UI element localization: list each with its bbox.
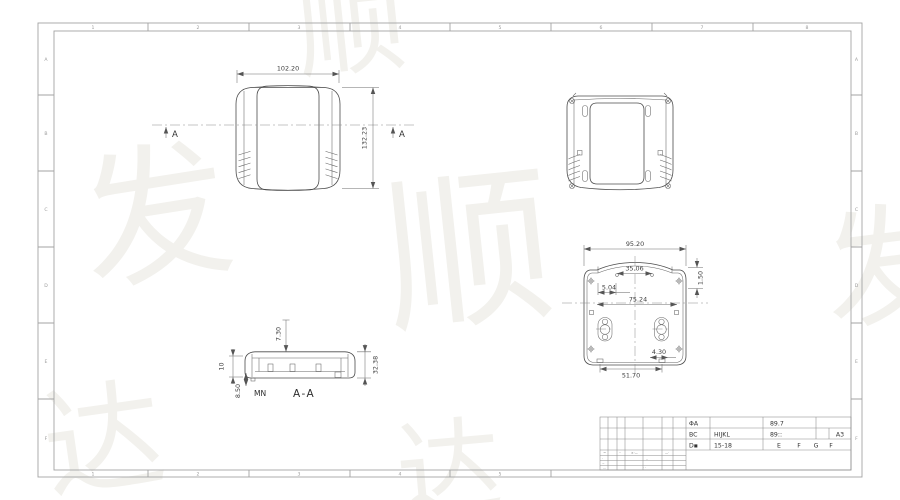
inner-offset-dim: 5.04: [602, 284, 616, 292]
drawing-sheet: 发 顺 达 顺 发 达 1 2 3 4 5 6 7 8 1 2 3 4 5: [0, 0, 900, 500]
zone-label: 8: [806, 25, 809, 31]
zone-label: A: [855, 57, 859, 63]
revision-mark: ··: [619, 451, 621, 455]
zone-label: C: [44, 207, 47, 213]
inner-foot-dim: 4.30: [652, 348, 666, 356]
inner-wall-dim: 1.50: [697, 271, 705, 285]
revision-mark: ×·—: [631, 451, 639, 455]
zone-label: E: [855, 359, 858, 365]
inner-width-dim: 75.24: [629, 296, 647, 304]
inner-square-right: [675, 311, 679, 315]
zone-label: A: [44, 57, 48, 63]
front-height-dim: 132.23: [361, 127, 369, 149]
zone-label: C: [855, 207, 858, 213]
title-block: ΦA 89.7 BC HIJKL 89:: A3 D▪ 15-18 E F G …: [600, 417, 851, 470]
watermark-char: 达: [392, 404, 507, 500]
tb-letter: E: [777, 443, 781, 450]
zone-label: 5: [499, 472, 502, 478]
zone-ticks-top: [148, 23, 753, 31]
zone-label: B: [855, 131, 858, 137]
view-inner: 95.20 35.06 5.04 75.24 1.50 4.30 51.70: [562, 240, 708, 380]
zone-ticks-left: [38, 95, 54, 399]
zone-label: 2: [197, 472, 200, 478]
back-screws: [569, 98, 670, 188]
zone-label: 1: [92, 472, 95, 478]
zone-label: 4: [399, 472, 402, 478]
zone-label: 4: [399, 25, 402, 31]
revision-mark: ·: [602, 456, 603, 460]
section-note: MN: [254, 389, 266, 398]
tb-letter: G: [814, 443, 819, 450]
zone-label: D: [44, 283, 48, 289]
watermark-char: 达: [35, 364, 173, 500]
tb-field-r2c3: 89::: [770, 432, 782, 439]
revision-mark: —·: [665, 451, 669, 455]
back-side-lines: [574, 100, 666, 186]
back-slots: [583, 106, 651, 182]
front-center-panel: [257, 86, 319, 191]
zone-label: F: [855, 436, 858, 442]
front-width-dim: 102.20: [277, 65, 299, 73]
section-lid-dim: 7.30: [275, 327, 283, 341]
zone-ticks-right: [851, 95, 862, 399]
tb-field-r1c1: ΦA: [689, 421, 699, 428]
inner-overall-dim: 95.20: [626, 240, 644, 248]
zone-label: 1: [92, 25, 95, 31]
section-outline: [245, 352, 355, 378]
tb-field-r3c1: D▪: [689, 443, 698, 450]
revision-mark: ‥: [646, 456, 648, 460]
back-corner-tabs: [573, 93, 667, 96]
zone-label: F: [45, 436, 48, 442]
tb-field-r2c2: HIJKL: [714, 432, 730, 439]
revision-mark: ~: [602, 461, 605, 465]
zone-label: 5: [499, 25, 502, 31]
section-left-dim: 10: [218, 362, 226, 370]
revision-grid-cols: [608, 417, 686, 470]
zone-label: B: [44, 131, 47, 137]
section-ribs: [251, 364, 341, 381]
front-body-outline: [236, 88, 340, 191]
back-top-inner: [574, 99, 666, 101]
section-letter-left: A: [172, 130, 178, 140]
zone-label: 3: [298, 25, 301, 31]
revision-mark: ·•: [603, 451, 606, 455]
tb-letter: F: [797, 443, 801, 450]
view-section: 7.30 32.38 10 8.50 MN A-A: [218, 320, 380, 400]
tb-field-r1c3: 89.7: [770, 421, 784, 428]
zone-label: 7: [701, 25, 704, 31]
view-back: [567, 93, 673, 190]
inner-slot-dim: 51.70: [622, 372, 640, 380]
dim-ext-total: [357, 352, 371, 378]
front-vents-right: [326, 151, 338, 178]
inner-foot-left: [597, 359, 603, 363]
zone-label: 6: [600, 25, 603, 31]
watermark-char: 顺: [374, 146, 564, 361]
tb-letter: F: [829, 443, 833, 450]
tb-field-r2c1: BC: [689, 432, 697, 439]
zone-label: E: [45, 359, 48, 365]
inner-boss-dim: 35.06: [625, 265, 643, 273]
revision-mark: · ·: [643, 466, 646, 470]
zone-label: 2: [197, 25, 200, 31]
watermark-char: 发: [68, 120, 243, 315]
revision-mark: …: [603, 466, 606, 470]
zone-label: D: [855, 283, 859, 289]
section-base-dim: 8.50: [234, 384, 242, 398]
tb-field-r3c2: 15-18: [714, 443, 732, 450]
inner-foot-right: [659, 359, 665, 363]
watermark-char: 顺: [289, 0, 412, 96]
inner-square-left: [590, 311, 594, 315]
back-body-outline: [567, 96, 673, 190]
tb-sheet-size: A3: [836, 432, 844, 439]
section-wall-lines: [252, 354, 348, 377]
section-total-dim: 32.38: [372, 356, 380, 374]
zone-label: 3: [298, 472, 301, 478]
back-recess-panel: [590, 103, 644, 184]
section-letter-right: A: [399, 130, 405, 140]
dim-ext-left: [229, 356, 243, 377]
cad-canvas: 发 顺 达 顺 发 达 1 2 3 4 5 6 7 8 1 2 3 4 5: [0, 0, 900, 500]
section-title: A-A: [293, 388, 315, 400]
front-vents-left: [239, 151, 251, 178]
